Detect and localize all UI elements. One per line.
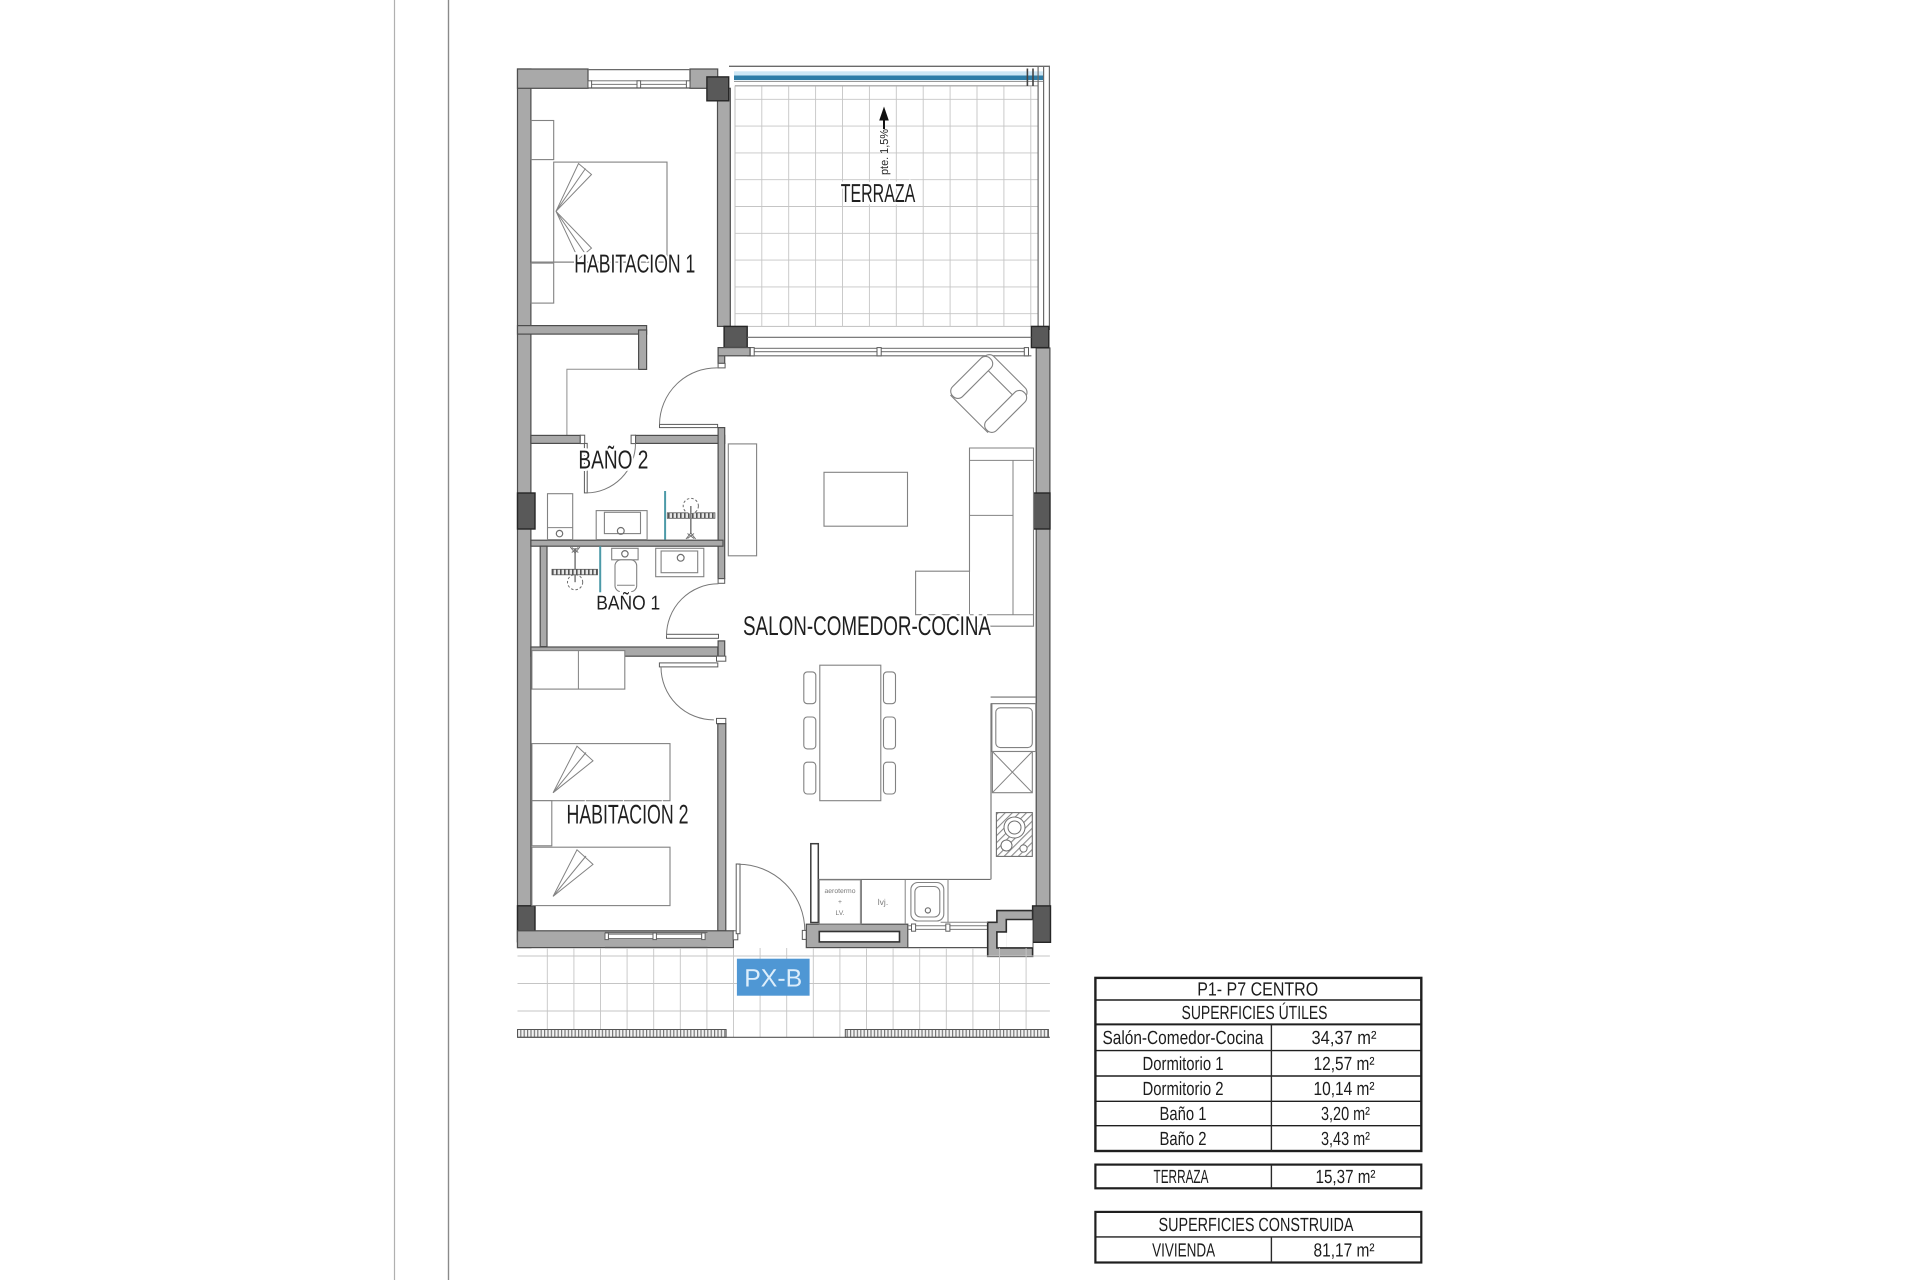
svg-text:BAÑO 2: BAÑO 2 [578, 445, 648, 475]
svg-text:81,17 m²: 81,17 m² [1314, 1241, 1375, 1262]
svg-text:Baño 1: Baño 1 [1160, 1104, 1207, 1125]
svg-text:15,37 m²: 15,37 m² [1316, 1167, 1376, 1188]
svg-text:VIVIENDA: VIVIENDA [1152, 1241, 1215, 1262]
svg-text:BAÑO 1: BAÑO 1 [596, 592, 660, 615]
svg-text:HABITACION 2: HABITACION 2 [567, 800, 689, 830]
svg-text:SUPERFICIES CONSTRUIDA: SUPERFICIES CONSTRUIDA [1159, 1215, 1354, 1236]
svg-text:12,57 m²: 12,57 m² [1314, 1054, 1375, 1075]
svg-text:HABITACION 1: HABITACION 1 [574, 249, 695, 279]
svg-text:TERRAZA: TERRAZA [841, 178, 916, 208]
svg-text:+: + [838, 899, 842, 906]
svg-text:34,37 m²: 34,37 m² [1312, 1028, 1377, 1049]
svg-text:P1- P7 CENTRO: P1- P7 CENTRO [1197, 980, 1318, 1001]
svg-text:3,43 m²: 3,43 m² [1321, 1129, 1370, 1150]
svg-text:SALON-COMEDOR-COCINA: SALON-COMEDOR-COCINA [743, 611, 991, 641]
svg-text:Dormitorio 2: Dormitorio 2 [1143, 1079, 1224, 1100]
svg-text:TERRAZA: TERRAZA [1154, 1167, 1209, 1188]
svg-text:pte. 1,5%: pte. 1,5% [879, 129, 891, 175]
svg-text:LV.: LV. [835, 910, 844, 917]
svg-text:SUPERFICIES ÚTILES: SUPERFICIES ÚTILES [1182, 1002, 1328, 1024]
svg-text:Dormitorio 1: Dormitorio 1 [1143, 1054, 1224, 1075]
svg-text:aerotermo: aerotermo [825, 888, 856, 895]
svg-text:Salón-Comedor-Cocina: Salón-Comedor-Cocina [1103, 1028, 1264, 1049]
svg-text:lvj.: lvj. [878, 897, 888, 907]
svg-text:Baño 2: Baño 2 [1160, 1129, 1207, 1150]
svg-text:3,20 m²: 3,20 m² [1321, 1104, 1370, 1125]
svg-text:PX-B: PX-B [744, 965, 802, 993]
svg-text:10,14 m²: 10,14 m² [1314, 1079, 1375, 1100]
